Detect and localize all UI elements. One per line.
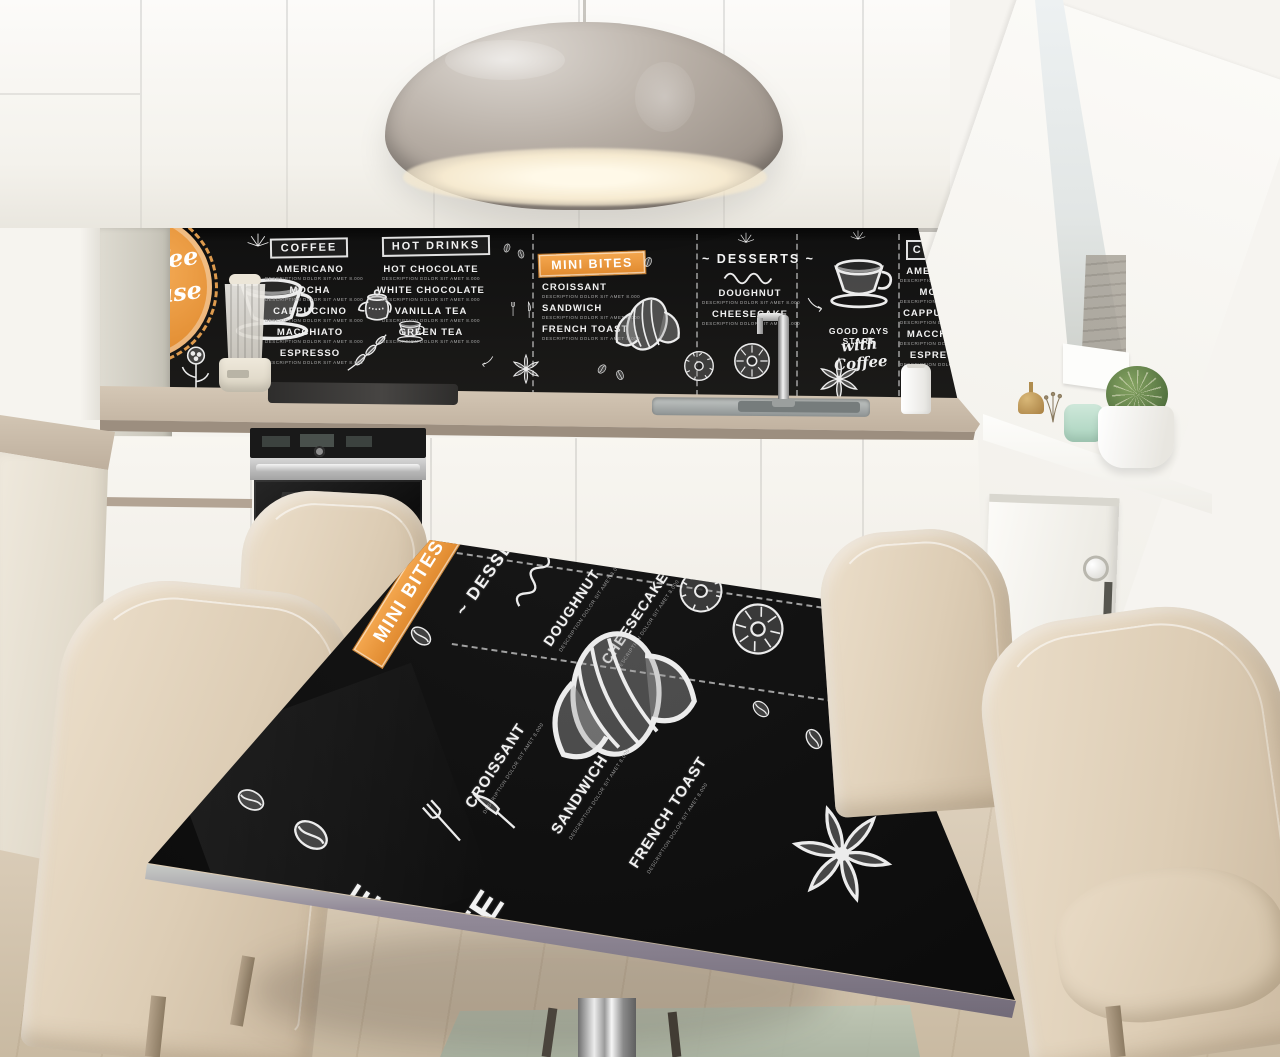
oven-display — [262, 436, 290, 447]
cabinet-seam — [140, 0, 142, 232]
menu-item: GREEN TEA — [372, 327, 490, 338]
oven-display — [346, 436, 372, 447]
lamp-highlight — [635, 62, 695, 132]
item-note: DESCRIPTION DOLOR SIT AMET 8.000 — [265, 318, 355, 323]
cabinet-seam — [0, 93, 140, 95]
faucet — [778, 315, 789, 403]
menu-item: VANILLA TEA — [372, 306, 490, 317]
star-anise-icon — [816, 356, 862, 402]
oven-handle — [256, 464, 420, 472]
item-note: DESCRIPTION DOLOR SIT AMET 8.000 — [372, 318, 490, 323]
mini-bites-ribbon: MINI BITES — [538, 250, 647, 278]
section-divider — [796, 234, 798, 396]
table-pedestal — [578, 998, 636, 1057]
badge-script-line1: Coffee — [170, 241, 199, 280]
item-note: DESCRIPTION DOLOR SIT AMET 8.000 — [372, 276, 490, 281]
sunburst-icon — [726, 230, 766, 250]
coffee-banner: COFFEE — [270, 237, 348, 258]
blender-jar-ribs — [223, 284, 267, 360]
soap-bottle — [901, 364, 931, 414]
menu-item: ESPRESSO — [265, 348, 355, 359]
menu-item: WHITE CHOCOLATE — [372, 285, 490, 296]
blender-button — [227, 370, 249, 378]
cabinet-groove — [100, 497, 252, 508]
flourish: ~ — [702, 252, 711, 266]
blender-jar — [223, 284, 267, 360]
induction-hob — [268, 382, 458, 405]
chair-piping — [831, 537, 1007, 790]
kitchen-sink — [652, 397, 870, 417]
badge-script-line2: House — [170, 275, 203, 314]
hot-drinks-banner: HOT DRINKS — [382, 235, 490, 257]
radiator-thermostat — [1083, 555, 1110, 582]
tall-cabinet-left — [0, 228, 100, 420]
doughnut-illustration — [676, 334, 722, 398]
soap-bottle-cap — [907, 364, 925, 368]
menu-item: DOUGHNUT — [702, 288, 798, 299]
coffee-bean-icon — [511, 241, 531, 268]
menu-item: CAPPUCCINO — [265, 306, 355, 317]
doughnut-illustration — [726, 326, 778, 396]
desserts-title-row: ~ DESSERTS ~ — [702, 252, 798, 266]
item-note: DESCRIPTION DOLOR SIT AMET 8.000 — [265, 297, 355, 302]
item-note: DESCRIPTION DOLOR SIT AMET 8.000 — [265, 339, 355, 344]
cabinet-seam — [862, 0, 864, 232]
item-note: DESCRIPTION DOLOR SIT AMET 8.000 — [265, 276, 355, 281]
oven-display — [300, 434, 334, 447]
section-coffee: AMERICANO DESCRIPTION DOLOR SIT AMET 8.0… — [265, 264, 355, 369]
oven-knob — [314, 446, 325, 457]
flourish: ~ — [452, 598, 474, 619]
star-anise-icon — [510, 348, 542, 390]
section-divider — [532, 234, 534, 396]
lamp-highlight — [445, 40, 565, 80]
item-note: DESCRIPTION DOLOR SIT AMET 8.000 — [265, 360, 355, 365]
desserts-title: DESSERTS — [717, 252, 800, 266]
lamp-glow — [403, 148, 767, 206]
item-note: DESCRIPTION DOLOR SIT AMET 8.000 — [702, 300, 798, 305]
menu-item: AMERICANO — [265, 264, 355, 275]
arrow-icon — [473, 354, 499, 374]
blender-base — [219, 358, 271, 392]
cabinet-seam — [286, 0, 288, 232]
squiggle-icon — [718, 270, 780, 286]
sink-basin — [738, 401, 860, 413]
faucet-base — [772, 399, 795, 407]
item-note: DESCRIPTION DOLOR SIT AMET 8.000 — [372, 339, 490, 344]
blender — [213, 274, 277, 392]
menu-item: MOCHA — [265, 285, 355, 296]
faucet-spout — [757, 318, 763, 334]
oven-control-panel — [250, 428, 426, 458]
menu-item: HOT CHOCOLATE — [372, 264, 490, 275]
menu-item: MACCHIATO — [265, 327, 355, 338]
section-hot-drinks: HOT CHOCOLATE DESCRIPTION DOLOR SIT AMET… — [372, 264, 490, 348]
arrow-icon — [804, 292, 830, 324]
item-note: DESCRIPTION DOLOR SIT AMET 8.000 — [372, 297, 490, 302]
kitchen-scene: Coffee House COFFEE AMERICANO DESCRIPTIO… — [0, 0, 1280, 1057]
cactus-pot — [1098, 406, 1174, 468]
flourish: ~ — [806, 252, 815, 266]
